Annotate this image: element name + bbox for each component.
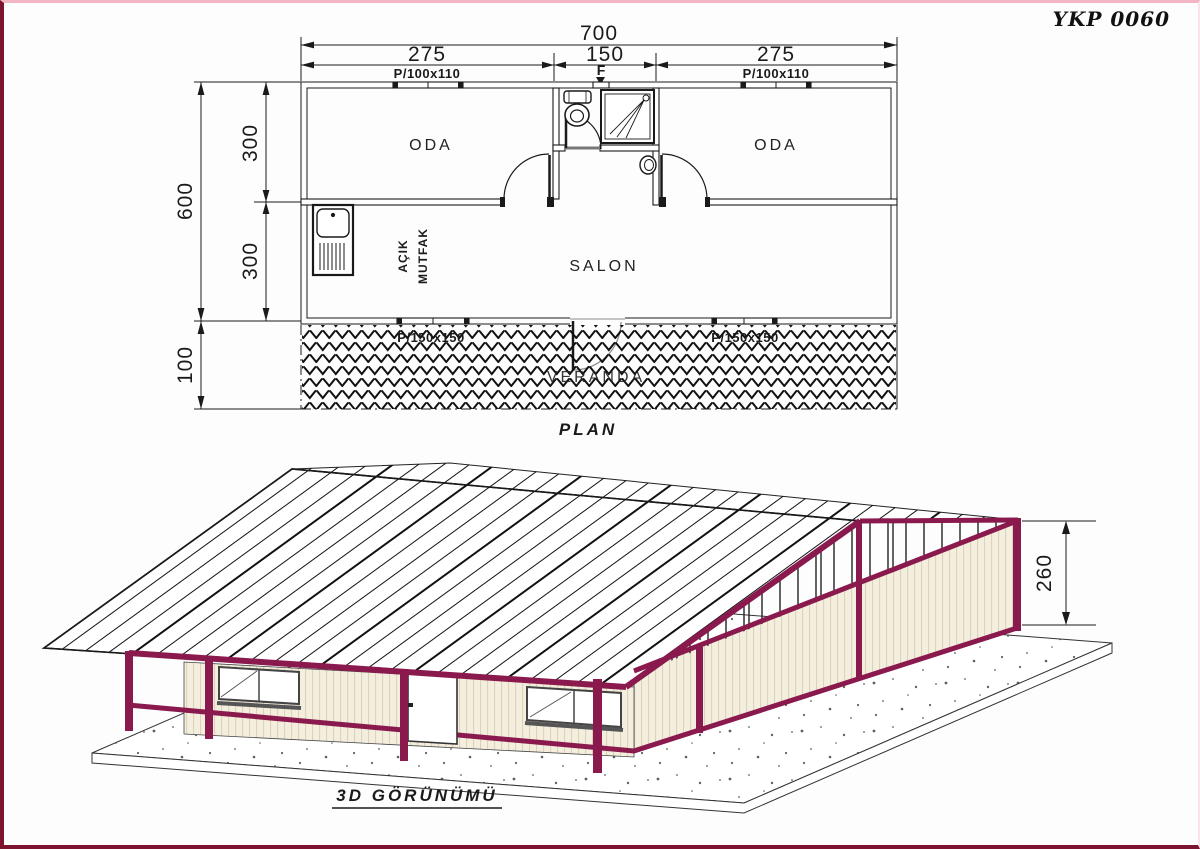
dim-depth-upper: 300 — [239, 124, 262, 162]
dim-depth-lower: 300 — [239, 242, 262, 280]
view3d-caption: 3D GÖRÜNÜMÜ — [336, 786, 497, 805]
back-top-beam — [860, 520, 1018, 521]
veranda-area — [301, 325, 897, 409]
veranda-post-2 — [205, 657, 213, 739]
dim-height: 260 — [1033, 554, 1056, 592]
window-3d-left — [217, 667, 301, 708]
drawing-canvas: 700 275 150 275 600 300 300 100 P/100x11… — [4, 3, 1200, 845]
floor-plan: 700 275 150 275 600 300 300 100 P/100x11… — [174, 22, 897, 439]
corner-post-front — [593, 679, 602, 773]
dim-total-width: 700 — [580, 22, 618, 45]
label-f-mark: F — [597, 62, 606, 78]
gable-center-post — [856, 522, 862, 679]
fixtures — [313, 90, 656, 275]
window-top-right — [741, 82, 811, 88]
interior-walls — [301, 88, 897, 207]
door-room-right — [662, 154, 708, 200]
drawing-sheet: YKP 0060 — [0, 0, 1200, 849]
dim-total-depth: 600 — [174, 182, 197, 220]
plan-caption: PLAN — [559, 420, 617, 439]
window-top-left — [393, 82, 463, 88]
window-3d-right — [525, 687, 623, 730]
dim-right-span: 275 — [757, 43, 795, 66]
kitchen-counter — [313, 205, 353, 275]
washbasin — [640, 156, 656, 174]
label-window-bottom-left: P/150x150 — [397, 330, 464, 345]
height-dimension: 260 — [1022, 521, 1096, 625]
room-label-salon: SALON — [569, 258, 638, 275]
toilet — [564, 91, 591, 126]
dim-veranda-depth: 100 — [174, 346, 197, 384]
door-3d — [405, 674, 457, 744]
shower — [601, 90, 654, 143]
label-window-bottom-right: P/150x150 — [711, 330, 778, 345]
window-bottom-right — [712, 318, 777, 324]
label-window-top-left: P/100x110 — [394, 66, 461, 81]
veranda-post-1 — [125, 651, 133, 731]
window-bottom-left — [397, 318, 469, 324]
room-label-right: ODA — [754, 137, 798, 154]
dim-left-span: 275 — [408, 43, 446, 66]
kitchen-label-line2: MUTFAK — [416, 228, 430, 284]
right-wall-post — [696, 647, 703, 733]
room-label-left: ODA — [409, 137, 453, 154]
room-label-veranda: VERANDA — [547, 369, 645, 386]
window-f — [593, 82, 609, 88]
label-window-top-right: P/100x110 — [743, 66, 810, 81]
veranda-post-3 — [400, 669, 408, 761]
corner-post-back — [1013, 518, 1021, 631]
kitchen-label-line1: AÇIK — [396, 239, 410, 272]
door-room-left — [504, 154, 550, 200]
3d-view: 260 3D GÖRÜNÜMÜ — [44, 443, 1112, 813]
